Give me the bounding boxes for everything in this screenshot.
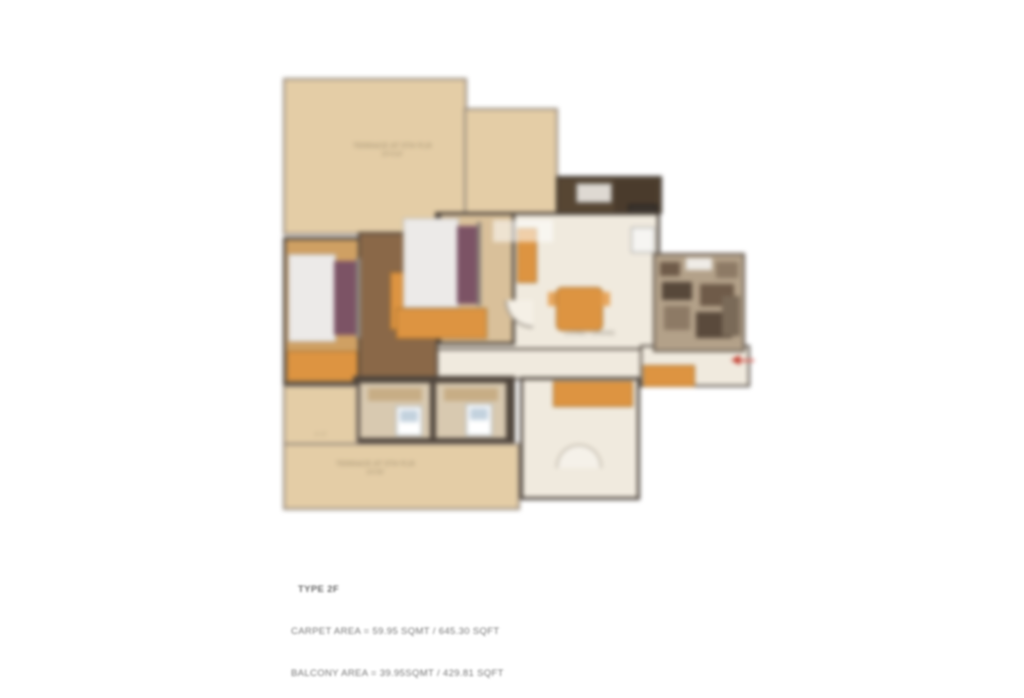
bed-2 xyxy=(403,218,459,308)
door-swing-icon xyxy=(493,220,553,242)
terrace-bottom-name: TERRACE AT 5TH FLR xyxy=(308,460,443,469)
toilet-detail xyxy=(400,410,418,422)
bathroom-1-counter xyxy=(368,388,422,401)
kitchen-counter xyxy=(660,262,680,276)
entry-arrow-line xyxy=(740,359,754,362)
living-dining-label: LIVING / DINING xyxy=(545,330,635,338)
caption-block: TYPE 2F CARPET AREA = 59.95 SQMT / 645.3… xyxy=(291,555,504,698)
terrace-top-dim: 20'X15' xyxy=(325,151,460,159)
kitchen-sink xyxy=(686,258,712,270)
bed-1-pillows xyxy=(334,261,356,335)
terrace-bottom-note: 4'-6" xyxy=(298,432,344,439)
terrace-top-label: TERRACE AT 5TH FLR 20'X15' xyxy=(325,142,460,160)
bedroom-2-wardrobe xyxy=(396,308,487,339)
terrace-bottom-label: TERRACE AT 5TH FLR 24'X8' xyxy=(308,460,443,478)
carpet-area-text: CARPET AREA = 59.95 SQMT / 645.30 SQFT xyxy=(291,625,504,639)
floor-plan-page: TERRACE AT 5TH FLR 20'X15' xyxy=(0,0,1024,698)
terrace-top-name: TERRACE AT 5TH FLR xyxy=(325,142,460,151)
fridge xyxy=(631,227,655,253)
kitchen-counter5 xyxy=(664,306,690,330)
kitchen-counter2 xyxy=(716,262,738,278)
kitchen-counter3 xyxy=(662,282,692,300)
terrace-top-extension xyxy=(464,108,558,215)
bed-1-headboard xyxy=(356,258,361,338)
planter-box xyxy=(576,183,612,203)
bed-2-pillows xyxy=(457,226,477,304)
bedroom-1-wardrobe xyxy=(287,351,358,381)
washbasin-detail xyxy=(470,408,488,420)
dining-chair-right xyxy=(602,292,610,306)
bed-1 xyxy=(288,254,336,342)
plan-type-label: TYPE 2F xyxy=(298,583,504,597)
floor-plan: TERRACE AT 5TH FLR 20'X15' xyxy=(0,0,1024,698)
entry-arrow-icon xyxy=(731,355,740,365)
dining-chair-left xyxy=(548,292,556,306)
shoe-bench xyxy=(643,365,695,387)
dining-table xyxy=(556,287,603,331)
foyer-sofa xyxy=(553,381,633,407)
kitchen-counter7 xyxy=(722,296,740,336)
terrace-bottom-dim: 24'X8' xyxy=(308,469,443,477)
bed-2-headboard xyxy=(477,222,481,306)
bathroom-2-counter xyxy=(444,388,498,401)
balcony-area-text: BALCONY AREA = 39.95SQMT / 429.81 SQFT xyxy=(291,667,504,681)
